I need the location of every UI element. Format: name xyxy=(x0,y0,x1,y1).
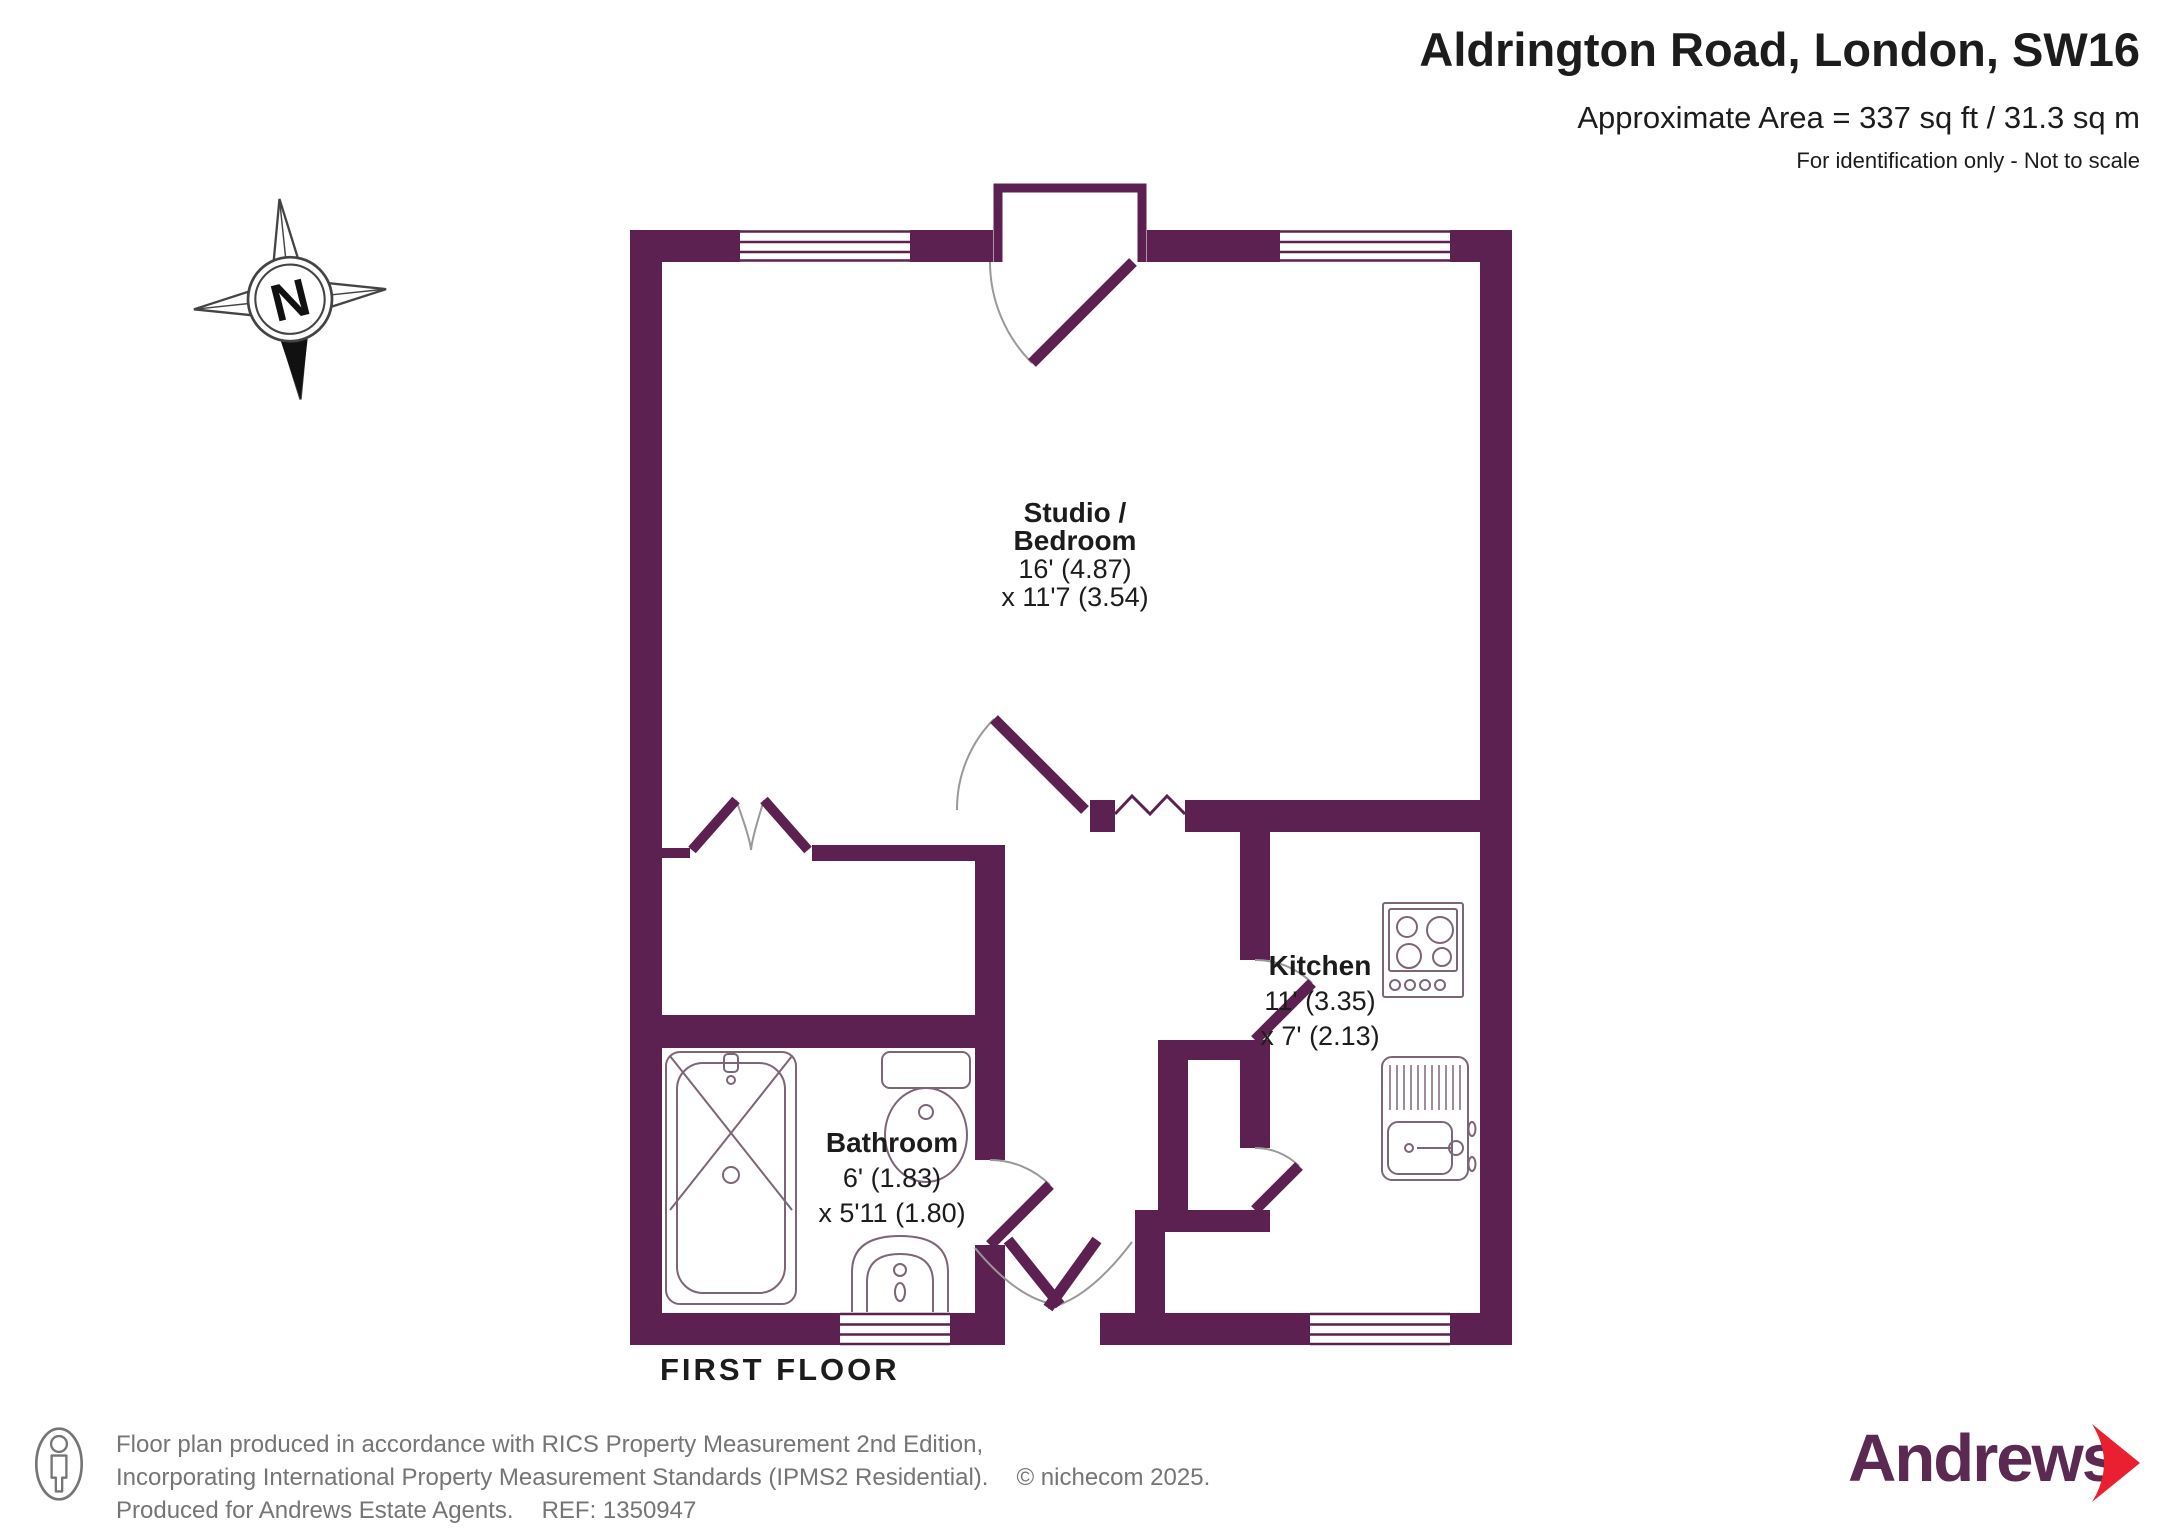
window xyxy=(840,1314,950,1344)
compass-rose-icon: N xyxy=(185,190,395,400)
approximate-area: Approximate Area = 337 sq ft / 31.3 sq m xyxy=(1577,100,2140,136)
room-label-studio: Studio / Bedroom 16' (4.87) x 11'7 (3.54… xyxy=(1001,497,1148,612)
svg-text:x 7' (2.13): x 7' (2.13) xyxy=(1260,1021,1379,1051)
svg-text:6' (1.83): 6' (1.83) xyxy=(843,1163,941,1193)
window xyxy=(1280,232,1450,261)
svg-text:Bedroom: Bedroom xyxy=(1014,525,1137,556)
svg-text:x 11'7 (3.54): x 11'7 (3.54) xyxy=(1001,582,1148,612)
footer-line-3: Produced for Andrews Estate Agents.REF: … xyxy=(116,1494,1210,1527)
svg-text:11' (3.35): 11' (3.35) xyxy=(1264,986,1375,1016)
hob-icon xyxy=(1383,903,1463,997)
footer-line-2: Incorporating International Property Mea… xyxy=(116,1461,1210,1494)
brand-wordmark: Andrews xyxy=(1848,1420,2117,1497)
copyright-note: © nichecom 2025. xyxy=(1016,1461,1210,1494)
bathtub-icon xyxy=(666,1052,796,1304)
kitchen-sink-icon xyxy=(1382,1057,1476,1180)
window xyxy=(740,232,910,261)
cupboard-door xyxy=(1255,1148,1299,1210)
reference-number: REF: 1350947 xyxy=(542,1494,697,1527)
floor-name-label: FIRST FLOOR xyxy=(660,1352,900,1388)
window xyxy=(1310,1314,1450,1344)
open-doorway-zigzag xyxy=(1115,796,1185,814)
svg-text:Kitchen: Kitchen xyxy=(1269,950,1372,981)
bathroom-door xyxy=(990,1160,1050,1245)
studio-door xyxy=(957,719,1085,810)
page-title: Aldrington Road, London, SW16 xyxy=(1419,22,2140,77)
svg-text:Studio /: Studio / xyxy=(1024,497,1127,528)
outer-walls xyxy=(630,230,1512,1345)
floor-plan: Studio / Bedroom 16' (4.87) x 11'7 (3.54… xyxy=(620,160,1520,1360)
bifold-door xyxy=(692,800,808,850)
person-icon xyxy=(32,1426,86,1502)
room-label-kitchen: Kitchen 11' (3.35) x 7' (2.13) xyxy=(1260,950,1379,1051)
footer-line-1: Floor plan produced in accordance with R… xyxy=(116,1428,1210,1461)
svg-text:Bathroom: Bathroom xyxy=(826,1127,958,1158)
entry-door xyxy=(990,188,1142,363)
andrews-arrow-icon xyxy=(2088,1424,2140,1502)
svg-text:x 5'11 (1.80): x 5'11 (1.80) xyxy=(818,1198,965,1228)
disclaimer-note: For identification only - Not to scale xyxy=(1796,148,2140,174)
svg-text:16' (4.87): 16' (4.87) xyxy=(1018,554,1131,584)
footer-disclaimer: Floor plan produced in accordance with R… xyxy=(116,1428,1210,1527)
pedestal-sink-icon xyxy=(852,1236,948,1312)
